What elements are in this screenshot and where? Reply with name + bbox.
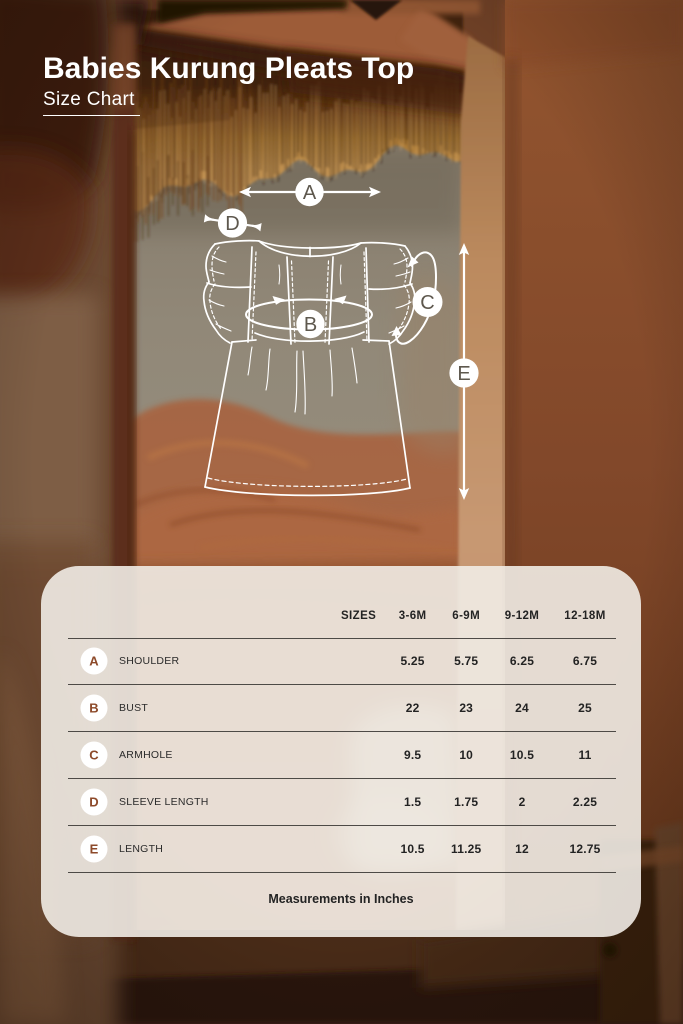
svg-text:E: E <box>457 363 470 385</box>
svg-text:A: A <box>303 182 317 204</box>
svg-text:B: B <box>304 314 317 336</box>
svg-text:C: C <box>420 292 434 314</box>
svg-text:D: D <box>225 213 239 235</box>
